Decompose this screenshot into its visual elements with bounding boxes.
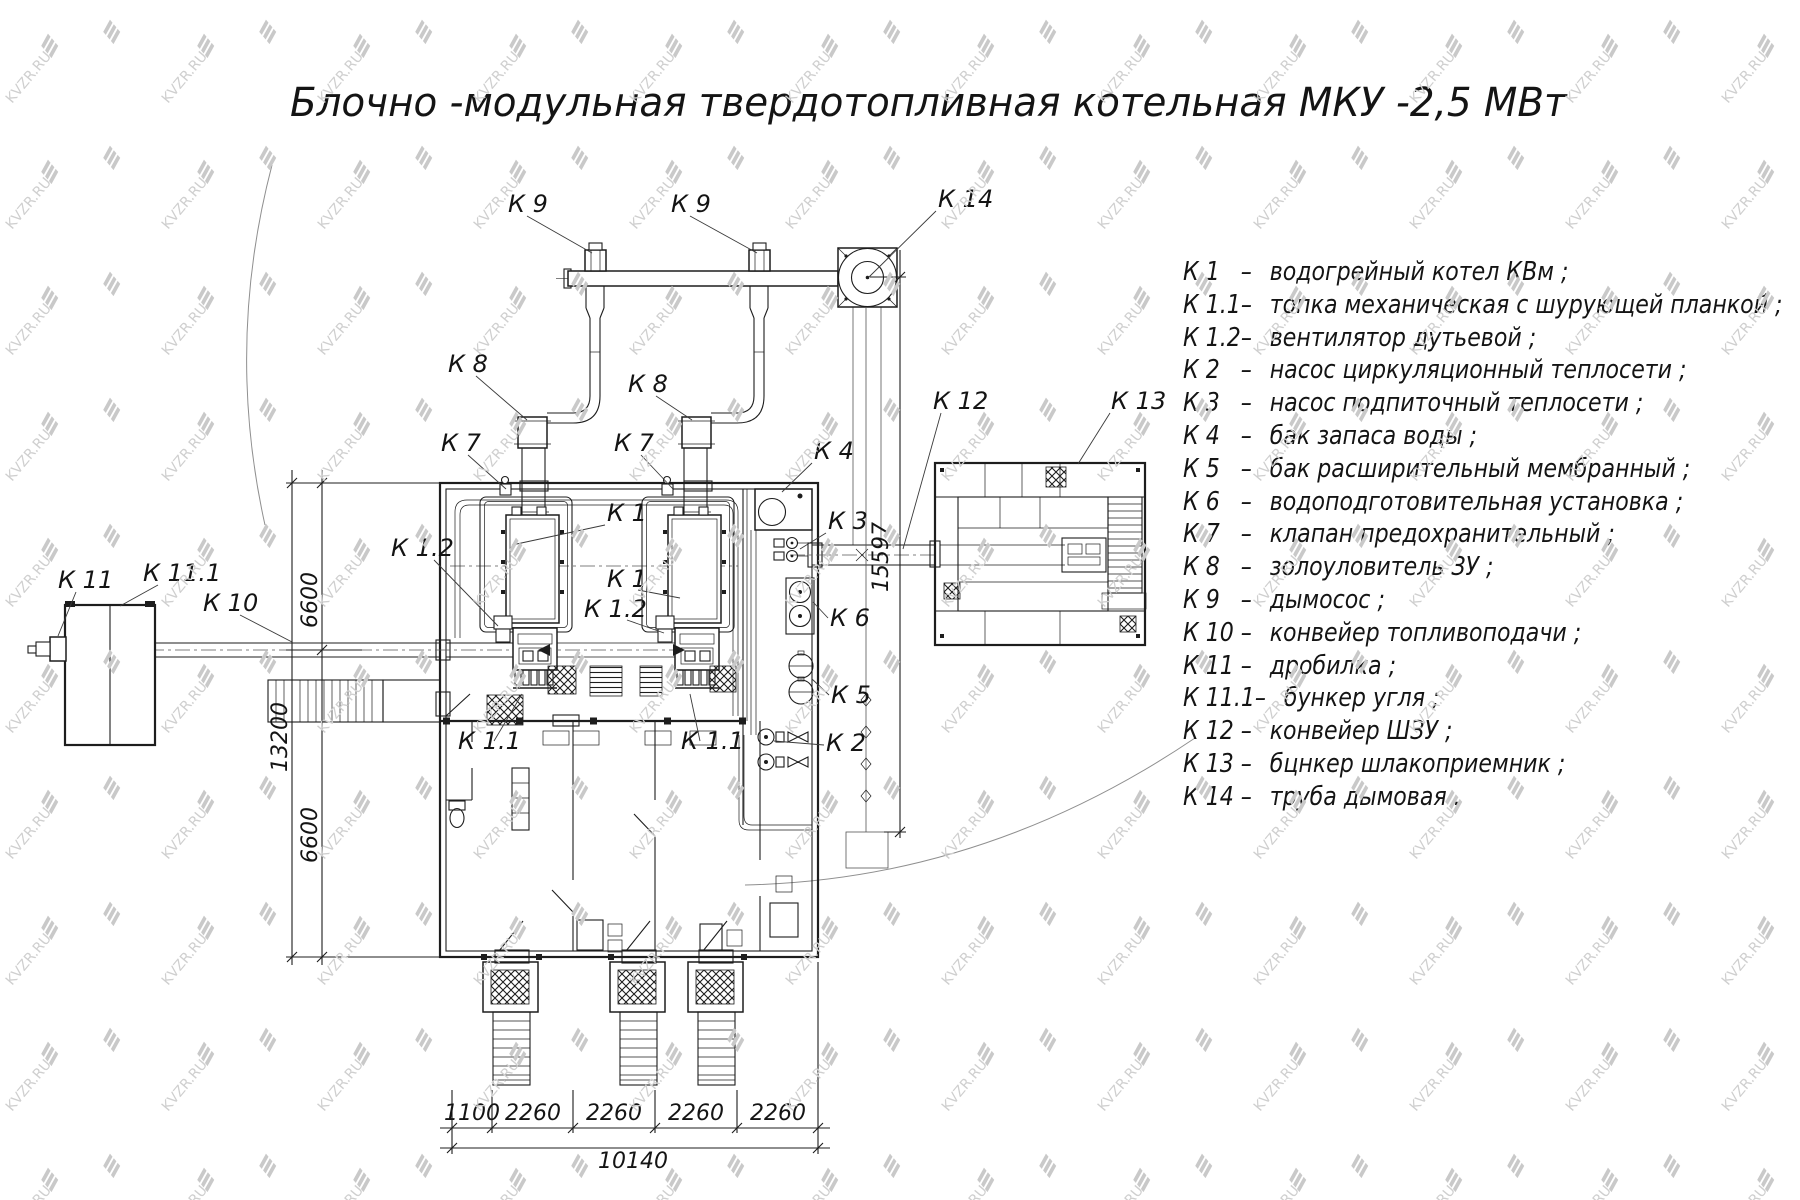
legend-item: К 5–бак расширительный мембранный ; (1183, 453, 1783, 486)
dimension-label: 2260 (750, 1101, 806, 1126)
legend-item: К 4–бак запаса воды ; (1183, 420, 1783, 453)
dimension-label: 15597 (869, 522, 894, 592)
dimension-label: 2260 (668, 1101, 724, 1126)
dimension-label: 6600 (298, 807, 323, 863)
legend-list: К 1–водогрейный котел КВм ;К 1.1–топка м… (1183, 256, 1783, 814)
callout-label: К 1 (607, 499, 647, 527)
legend-item: К 3–насос подпиточный теплосети ; (1183, 387, 1783, 420)
callout-leader (690, 216, 757, 253)
legend-item: К 10–конвейер топливоподачи ; (1183, 617, 1783, 650)
callout-leader (774, 741, 824, 745)
dimension-label: 1100 (444, 1101, 500, 1126)
callout-label: К 1 (607, 565, 647, 593)
dimension-label: 6600 (298, 572, 323, 628)
flue-assembly (514, 243, 848, 448)
legend-item: К 12–конвейер ШЗУ ; (1183, 715, 1783, 748)
legend-item: К 11–дробилка ; (1183, 650, 1783, 683)
callout-label: К 12 (933, 387, 988, 415)
callout-label: К 13 (1111, 387, 1166, 415)
callout-label: К 14 (938, 185, 993, 213)
legend-item: К 2–насос циркуляционный теплосети ; (1183, 354, 1783, 387)
callout-label: К 8 (628, 370, 668, 398)
callout-label: К 9 (508, 190, 548, 218)
drawing-title: Блочно -модульная твердотопливная котель… (290, 80, 1473, 126)
blueprint-page: К 9К 9К 14К 8К 8К 7К 7К 4К 1К 1К 1.2К 1.… (0, 0, 1800, 1200)
legend-item: К 14–труба дымовая . (1183, 781, 1783, 814)
callout-leader (1078, 413, 1110, 464)
slag-bunker (930, 463, 1146, 645)
callout-leader (656, 396, 692, 420)
callout-leader (240, 615, 292, 642)
callout-label: К 11.1 (143, 559, 221, 587)
legend-item: К 11.1–бункер угля ; (1183, 682, 1783, 715)
porch-2 (610, 962, 665, 1085)
callout-leader (782, 463, 812, 492)
legend-item: К 8–золоуловитель ЗУ ; (1183, 551, 1783, 584)
callout-leader (434, 560, 498, 626)
porch-1 (483, 962, 538, 1085)
porch-3 (688, 962, 743, 1085)
legend-item: К 6–водоподготовительная установка ; (1183, 486, 1783, 519)
dimension-label: 2260 (586, 1101, 642, 1126)
callout-leader (476, 376, 527, 420)
dimension-label: 2260 (505, 1101, 561, 1126)
callout-leader (869, 211, 936, 277)
dimension-label: 13200 (268, 702, 293, 772)
legend-item: К 1.2–вентилятор дутьевой ; (1183, 322, 1783, 355)
callout-label: К 6 (830, 604, 870, 632)
callout-label: К 5 (831, 681, 871, 709)
callout-label: К 4 (814, 437, 854, 465)
callout-label: К 8 (448, 350, 488, 378)
callout-leader (527, 216, 592, 253)
callout-label: К 10 (203, 589, 258, 617)
callout-label: К 9 (671, 190, 711, 218)
callout-label: К 1.1 (681, 727, 744, 755)
dimension-labels: 6600132006600155971100226022602260226010… (268, 522, 894, 1174)
callout-label: К 7 (614, 429, 655, 457)
dimension-label: 10140 (598, 1149, 668, 1174)
callout-label: К 3 (828, 507, 868, 535)
callout-leader (812, 679, 829, 695)
callout-label: К 2 (826, 729, 866, 757)
chimney (838, 248, 897, 545)
callout-leader (813, 602, 828, 618)
legend-item: К 13–бцнкер шлакоприемник ; (1183, 748, 1783, 781)
legend-item: К 1–водогрейный котел КВм ; (1183, 256, 1783, 289)
equipment-corridor (739, 489, 814, 830)
callout-label: К 1.2 (584, 595, 647, 623)
callout-label: К 7 (441, 429, 482, 457)
legend-item: К 7–клапан предохранительный ; (1183, 518, 1783, 551)
callout-label: К 11 (58, 566, 113, 594)
legend-item: К 1.1–топка механическая с шурующей план… (1183, 289, 1783, 322)
furniture (449, 731, 798, 952)
west-stairs (268, 680, 523, 725)
legend-item: К 9–дымосос ; (1183, 584, 1783, 617)
dimension-lines (286, 250, 906, 1154)
callout-label: К 1.1 (458, 727, 521, 755)
callout-label: К 1.2 (391, 534, 454, 562)
